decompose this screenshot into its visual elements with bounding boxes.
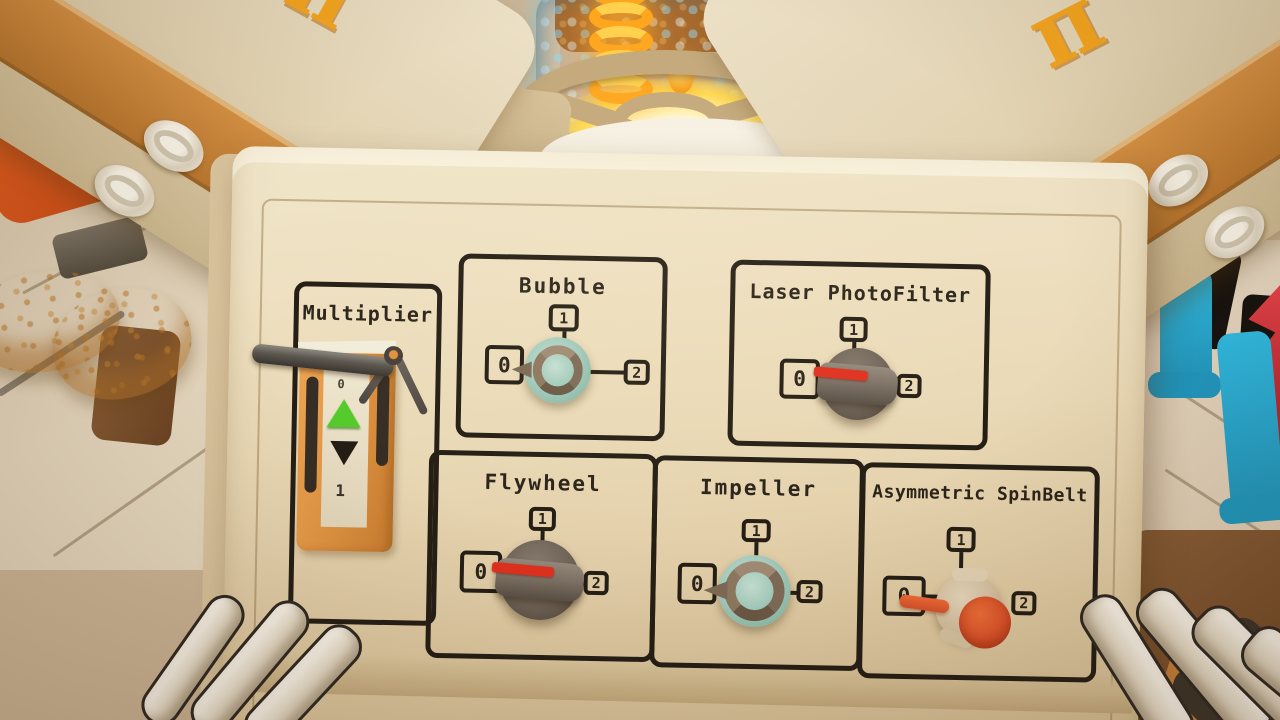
asymmetric-spinbelt-label: Asymmetric SpinBelt	[865, 481, 1094, 506]
multiplier-label: Multiplier	[299, 300, 437, 327]
asymmetric-spinbelt-knob[interactable]	[935, 574, 1002, 641]
flywheel-label: Flywheel	[433, 469, 652, 497]
position-box-1: 1	[549, 304, 580, 332]
stem-line	[754, 542, 758, 556]
position-box-1: 1	[839, 317, 867, 343]
control-group-laser-photofilter: Laser PhotoFilter 1 0 2	[727, 260, 991, 451]
knob-orange-face	[958, 596, 1011, 649]
lever-position-0: 0	[337, 377, 345, 391]
control-group-asymmetric-spinbelt: Asymmetric SpinBelt 1 0 2	[857, 462, 1100, 683]
position-box-0: 0	[677, 563, 717, 605]
position-box-2: 2	[583, 571, 608, 595]
position-box-2: 2	[796, 580, 822, 603]
control-group-flywheel: Flywheel 1 0 2	[425, 450, 658, 662]
vr-cockpit-scene: π π Multiplier 0	[0, 0, 1280, 720]
down-arrow-icon	[330, 441, 358, 466]
flywheel-knob[interactable]	[499, 539, 581, 621]
control-group-multiplier: Multiplier 0 1	[288, 281, 443, 626]
control-group-impeller: Impeller 1 0 2	[649, 455, 865, 671]
position-box-1: 1	[946, 527, 975, 553]
position-box-2: 2	[623, 360, 649, 385]
pi-decal: π	[1010, 0, 1119, 90]
lever-strut	[394, 356, 428, 415]
multiplier-lever[interactable]: 0 1	[296, 352, 396, 552]
position-box-0: 0	[779, 359, 820, 400]
position-box-2: 2	[896, 374, 921, 398]
position-box-1: 1	[741, 519, 770, 543]
link-line	[588, 370, 626, 375]
position-box-1: 1	[529, 507, 556, 532]
pi-decal: π	[271, 0, 378, 50]
bubble-label: Bubble	[463, 272, 662, 300]
control-group-bubble: Bubble 1 0 2	[455, 253, 667, 441]
control-panel: Multiplier 0 1 Bubble 1 0	[221, 146, 1149, 720]
lever-slot	[376, 374, 390, 466]
bubble-knob[interactable]	[524, 337, 591, 404]
position-box-0: 0	[484, 345, 524, 385]
laser-photofilter-label: Laser PhotoFilter	[735, 279, 985, 308]
impeller-knob[interactable]	[718, 554, 791, 627]
lever-position-1: 1	[335, 481, 345, 500]
impeller-label: Impeller	[657, 474, 859, 502]
lever-slot	[304, 376, 318, 492]
position-box-2: 2	[1011, 591, 1036, 615]
laser-photofilter-knob[interactable]	[821, 347, 894, 420]
up-arrow-icon	[327, 399, 362, 428]
